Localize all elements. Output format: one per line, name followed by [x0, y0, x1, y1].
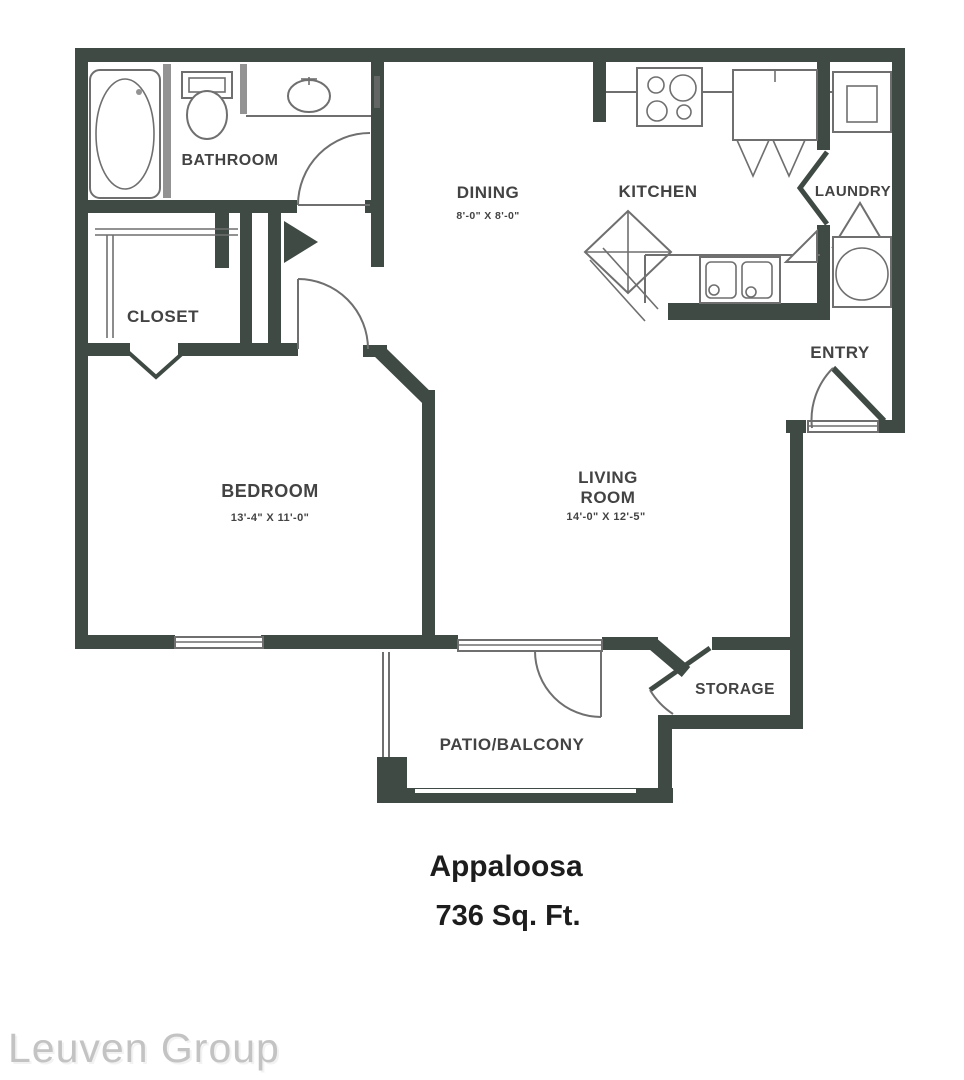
living-room-dims: 14'-0" X 12'-5" — [566, 511, 645, 523]
toilet-icon — [182, 72, 232, 139]
dining-dims: 8'-0" X 8'-0" — [456, 210, 519, 222]
living-room-label-line2: ROOM — [581, 488, 636, 507]
kitchen-island — [585, 211, 671, 321]
washer-icon — [833, 237, 891, 307]
bathroom-label: BATHROOM — [181, 152, 278, 169]
refrigerator-icon — [733, 70, 817, 176]
watermark: Leuven Group Leuven Group — [8, 1025, 282, 1073]
floor-plan-svg: BATHROOM CLOSET DINING 8'-0" X 8'-0" KIT… — [0, 0, 964, 1080]
patio-door — [458, 640, 602, 717]
patio-label: PATIO/BALCONY — [440, 735, 585, 754]
corner-shelf — [786, 231, 817, 262]
bathroom-door — [298, 133, 370, 205]
title-block: Appaloosa 736 Sq. Ft. — [429, 850, 583, 932]
storage-label: STORAGE — [695, 681, 775, 698]
bedroom-dims: 13'-4" X 11'-0" — [231, 512, 310, 524]
closet-bifold-door — [128, 352, 184, 377]
patio-railing — [383, 652, 389, 757]
laundry-label: LAUNDRY — [815, 183, 891, 200]
closet-label: CLOSET — [127, 307, 199, 326]
vanity-stub-wall — [240, 64, 247, 114]
living-room-label-line1: LIVING — [578, 468, 638, 487]
plan-area: 736 Sq. Ft. — [435, 900, 580, 932]
kitchen-label: KITCHEN — [618, 182, 697, 201]
bedroom-window — [175, 637, 263, 648]
tub-stall-wall — [163, 64, 171, 198]
stove-icon — [637, 68, 702, 126]
dining-label: DINING — [457, 183, 520, 202]
kitchen-sink-icon — [700, 257, 780, 303]
watermark-text: Leuven Group — [8, 1025, 280, 1071]
entry-label: ENTRY — [810, 343, 870, 362]
bathroom-sink-icon — [246, 77, 371, 116]
bedroom-label: BEDROOM — [221, 481, 319, 501]
plan-name: Appaloosa — [429, 850, 583, 883]
floorplan-image: BATHROOM CLOSET DINING 8'-0" X 8'-0" KIT… — [0, 0, 964, 1080]
bathroom-fixtures — [90, 64, 371, 205]
entry-door — [808, 368, 884, 432]
dryer-icon — [833, 72, 891, 132]
bedroom-door — [298, 279, 368, 349]
bathtub-icon — [90, 70, 160, 198]
linen-closet-doors — [284, 221, 318, 263]
